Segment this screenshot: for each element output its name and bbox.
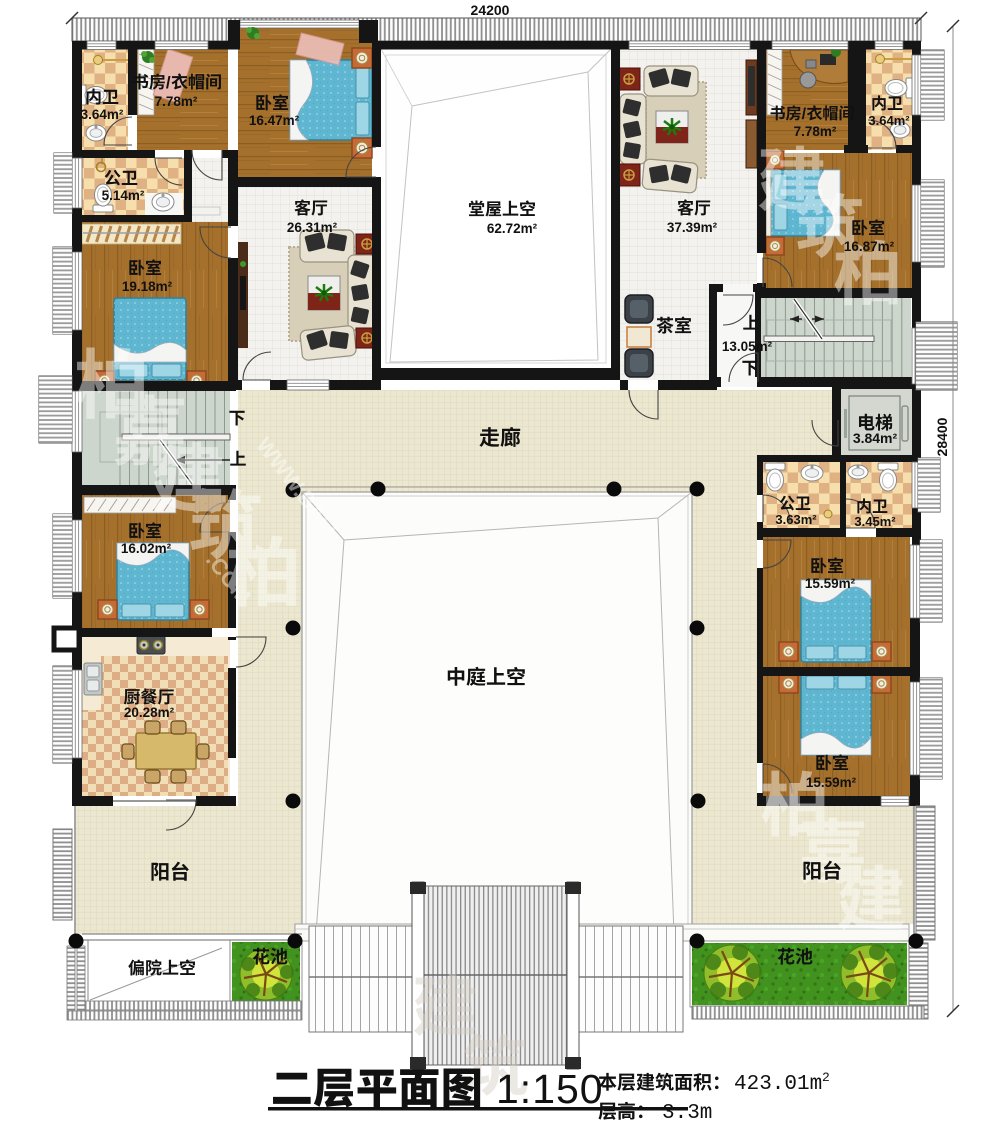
svg-text:3.63m²: 3.63m² bbox=[775, 512, 817, 527]
svg-text:3.84m²: 3.84m² bbox=[853, 430, 898, 446]
svg-text:2: 2 bbox=[822, 1070, 830, 1085]
svg-text:16.02m²: 16.02m² bbox=[121, 541, 172, 556]
svg-text:26.31m²: 26.31m² bbox=[287, 220, 338, 235]
svg-text:423.01m: 423.01m bbox=[734, 1073, 822, 1096]
svg-text:13.05m²: 13.05m² bbox=[722, 339, 773, 354]
svg-text:15.59m²: 15.59m² bbox=[805, 576, 856, 591]
svg-text:/: / bbox=[166, 73, 171, 92]
svg-text:7.78m²: 7.78m² bbox=[155, 94, 198, 109]
svg-text:28400: 28400 bbox=[934, 417, 950, 456]
svg-text:1:150: 1:150 bbox=[496, 1066, 604, 1112]
svg-text:24200: 24200 bbox=[471, 2, 510, 18]
svg-text:3.3m: 3.3m bbox=[662, 1102, 712, 1121]
svg-text:19.18m²: 19.18m² bbox=[122, 279, 173, 294]
svg-text:16.47m²: 16.47m² bbox=[249, 113, 300, 128]
svg-text:3.45m²: 3.45m² bbox=[854, 514, 896, 529]
svg-text:15.59m²: 15.59m² bbox=[806, 775, 857, 790]
svg-text:37.39m²: 37.39m² bbox=[667, 220, 718, 235]
svg-text:5.14m²: 5.14m² bbox=[102, 188, 145, 203]
svg-text:/: / bbox=[802, 106, 807, 123]
svg-text:3.64m²: 3.64m² bbox=[81, 107, 124, 122]
svg-text:16.87m²: 16.87m² bbox=[844, 239, 895, 254]
svg-text:3.64m²: 3.64m² bbox=[868, 113, 910, 128]
svg-text:20.28m²: 20.28m² bbox=[124, 705, 175, 720]
svg-text:62.72m²: 62.72m² bbox=[487, 221, 538, 236]
svg-text:7.78m²: 7.78m² bbox=[794, 124, 837, 139]
